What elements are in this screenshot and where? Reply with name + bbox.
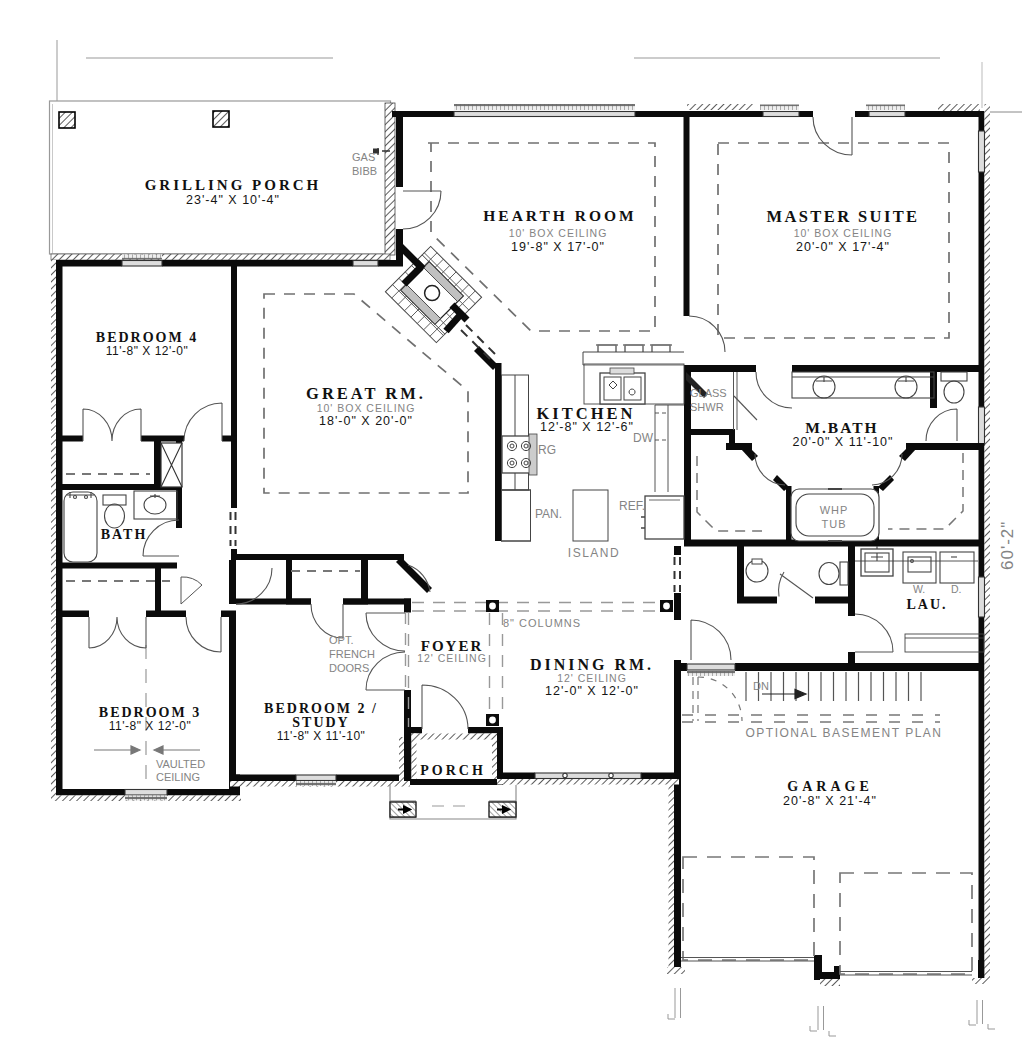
svg-text:RG: RG [538, 443, 556, 457]
svg-text:10' BOX CEILING: 10' BOX CEILING [317, 402, 416, 414]
svg-text:BIBB: BIBB [352, 165, 377, 177]
svg-text:WHP: WHP [820, 504, 849, 516]
svg-text:23'-4" X 10'-4": 23'-4" X 10'-4" [186, 193, 280, 207]
svg-text:TUB: TUB [822, 518, 847, 530]
svg-text:12'-8" X 12'-6": 12'-8" X 12'-6" [540, 420, 634, 434]
svg-text:12' CEILING: 12' CEILING [417, 652, 487, 664]
svg-text:MASTER SUITE: MASTER SUITE [766, 207, 919, 226]
svg-text:11'-8" X 12'-0": 11'-8" X 12'-0" [106, 344, 188, 358]
svg-text:BEDROOM 4: BEDROOM 4 [96, 330, 198, 345]
svg-text:DN: DN [753, 680, 769, 692]
svg-text:12'-0" X 12'-0": 12'-0" X 12'-0" [545, 684, 639, 698]
svg-text:20'-0" X 17'-4": 20'-0" X 17'-4" [796, 240, 890, 254]
svg-text:STUDY: STUDY [292, 715, 349, 730]
svg-text:HEARTH ROOM: HEARTH ROOM [483, 207, 636, 224]
svg-text:OPT.: OPT. [329, 634, 353, 646]
svg-text:D.: D. [951, 583, 962, 595]
svg-text:19'-8" X 17'-0": 19'-8" X 17'-0" [511, 240, 605, 254]
svg-text:W.: W. [913, 583, 925, 595]
svg-text:FRENCH: FRENCH [329, 648, 375, 660]
svg-text:11'-8" X 12'-0": 11'-8" X 12'-0" [109, 719, 191, 733]
svg-text:DINING RM.: DINING RM. [530, 656, 654, 673]
svg-text:BEDROOM 3: BEDROOM 3 [99, 705, 201, 720]
svg-text:GRILLING PORCH: GRILLING PORCH [145, 177, 322, 193]
svg-text:BEDROOM 2 /: BEDROOM 2 / [264, 701, 378, 716]
svg-text:OPTIONAL BASEMENT PLAN: OPTIONAL BASEMENT PLAN [745, 726, 942, 740]
svg-text:11'-8" X 11'-10": 11'-8" X 11'-10" [277, 729, 366, 743]
svg-text:M.BATH: M.BATH [805, 419, 878, 436]
svg-text:18'-0" X 20'-0": 18'-0" X 20'-0" [319, 414, 413, 428]
svg-text:10' BOX CEILING: 10' BOX CEILING [794, 227, 893, 239]
svg-text:GARAGE: GARAGE [787, 779, 872, 794]
svg-text:PORCH: PORCH [420, 763, 486, 778]
svg-text:DW: DW [633, 431, 654, 445]
svg-text:GLASS: GLASS [690, 387, 727, 399]
svg-text:PAN.: PAN. [535, 507, 562, 521]
svg-text:LAU.: LAU. [906, 597, 947, 612]
svg-text:60'-2": 60'-2" [998, 521, 1017, 570]
svg-text:SHWR: SHWR [690, 401, 724, 413]
svg-text:12' CEILING: 12' CEILING [557, 672, 627, 684]
svg-text:GAS: GAS [352, 151, 375, 163]
svg-text:DOORS: DOORS [329, 662, 369, 674]
svg-text:20'-8" X 21'-4": 20'-8" X 21'-4" [783, 794, 877, 808]
svg-text:BATH: BATH [101, 527, 148, 542]
svg-text:GREAT RM.: GREAT RM. [306, 384, 426, 403]
svg-text:8" COLUMNS: 8" COLUMNS [503, 617, 581, 629]
svg-text:CEILING: CEILING [156, 771, 200, 783]
svg-text:VAULTED: VAULTED [156, 758, 205, 770]
svg-text:REF.: REF. [619, 499, 645, 513]
svg-text:10' BOX CEILING: 10' BOX CEILING [509, 227, 608, 239]
svg-text:ISLAND: ISLAND [568, 546, 620, 560]
svg-text:20'-0" X 11'-10": 20'-0" X 11'-10" [793, 435, 894, 449]
